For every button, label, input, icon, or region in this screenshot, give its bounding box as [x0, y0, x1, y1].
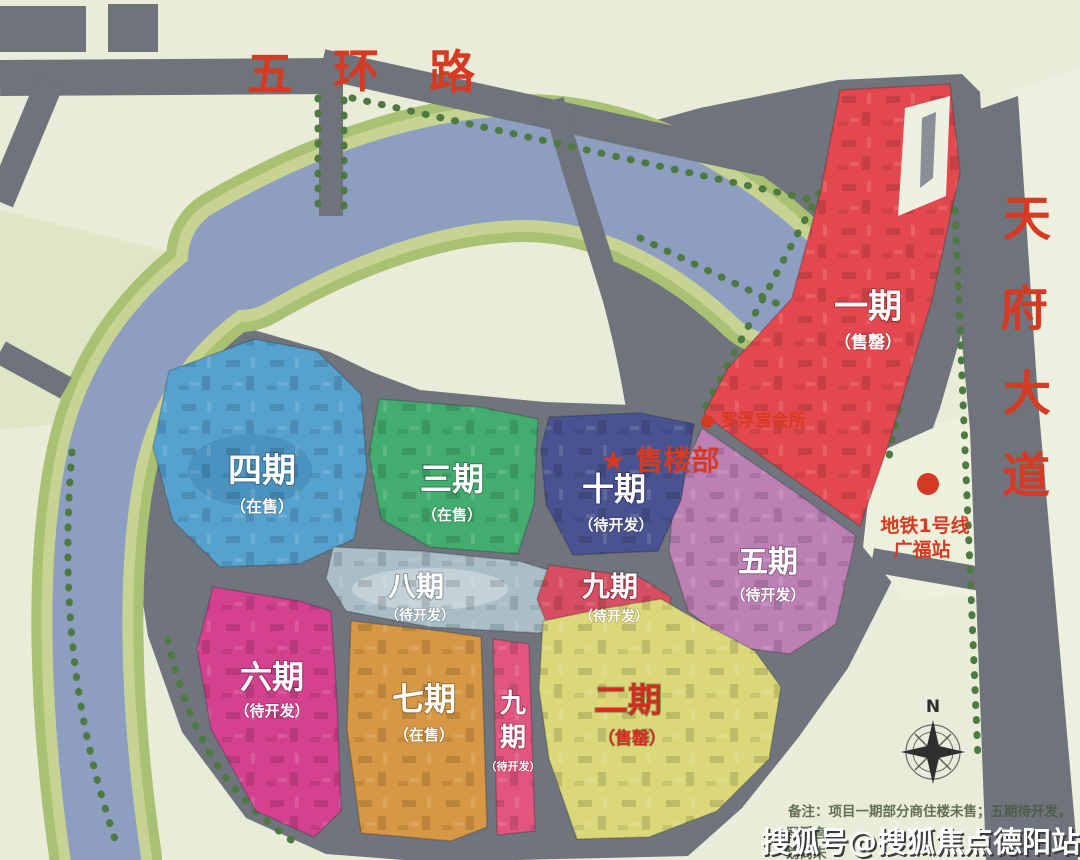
masterplan-map: 一期 （售罄） 五期 （待开发） 十期 （待开发） 三期 （在售） 四期 （在售… — [0, 0, 1080, 860]
status-phase-7: （在售） — [394, 726, 454, 744]
road-label-tianfu-char1: 天 — [1003, 191, 1051, 247]
map-canvas: 一期 （售罄） 五期 （待开发） 十期 （待开发） 三期 （在售） 四期 （在售… — [0, 0, 1080, 860]
metro-station-dot — [917, 473, 939, 495]
sales-office-label: ★ 售楼部 — [601, 444, 720, 477]
remark-line-1: 备注：项目一期部分商住楼未售；五期待开发， — [787, 803, 1072, 820]
compass-north-label: N — [926, 697, 940, 717]
road-corner-block-1 — [0, 6, 86, 52]
label-phase-1: 一期 — [834, 287, 902, 327]
watermark: 搜狐号@搜狐焦点德阳站 搜狐号@搜狐焦点德阳站 — [761, 825, 1080, 860]
label-phase-8: 八期 — [388, 570, 444, 603]
label-phase-9-strip-char2: 期 — [500, 723, 526, 753]
label-phase-6: 六期 — [240, 658, 304, 696]
label-phase-7: 七期 — [392, 680, 456, 718]
status-phase-2: （售罄） — [598, 728, 666, 749]
road-label-tianfu-char2: 府 — [1000, 281, 1048, 337]
road-label-wuhuan-char2: 环 — [333, 44, 379, 98]
label-phase-5: 五期 — [738, 545, 798, 580]
metro-station-label: 广福站 — [893, 538, 950, 561]
label-phase-2: 二期 — [594, 681, 662, 721]
label-phase-9-center: 九期 — [582, 570, 638, 603]
road-corner-block-2 — [108, 4, 158, 52]
status-phase-4: （在售） — [230, 497, 294, 516]
label-phase-3: 三期 — [420, 460, 484, 498]
status-phase-10: （待开发） — [578, 516, 653, 534]
status-phase-6: （待开发） — [234, 702, 309, 720]
road-label-wuhuan-char3: 路 — [429, 45, 476, 99]
metro-line-label: 地铁1号线 — [880, 514, 969, 537]
road-label-tianfu-char3: 大 — [1003, 366, 1051, 422]
status-phase-3: （在售） — [422, 506, 482, 524]
status-phase-8: （待开发） — [385, 607, 455, 624]
status-phase-1: （售罄） — [834, 332, 902, 353]
label-phase-4: 四期 — [228, 451, 296, 491]
status-phase-9-strip: （待开发） — [486, 759, 541, 773]
status-phase-5: （待开发） — [730, 586, 805, 604]
status-phase-9-center: （待开发） — [579, 608, 649, 625]
watermark-text: 搜狐号@搜狐焦点德阳站 — [761, 825, 1080, 859]
road-label-wuhuan-char1: 五 — [247, 47, 293, 101]
label-phase-9-strip-char1: 九 — [499, 689, 526, 719]
road-label-tianfu-char4: 道 — [1002, 448, 1050, 504]
club-label: ● 罗浮宫会所 — [700, 410, 806, 431]
